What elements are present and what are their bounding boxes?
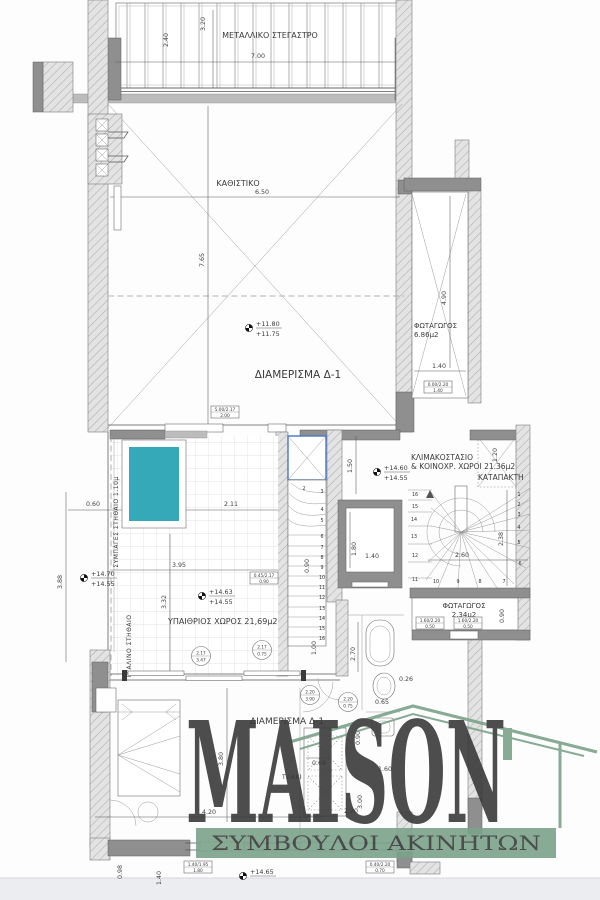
dim-canopy-d2: 3.20: [200, 17, 207, 31]
dim-stair-off: 1.50: [347, 459, 354, 473]
svg-text:9: 9: [320, 565, 323, 571]
svg-text:0.50: 0.50: [463, 624, 473, 630]
dim-shaft-w: 1.40: [365, 553, 379, 560]
level-marker: [239, 872, 246, 879]
well2-label: ΦΩΤΑΓΩΓΟΣ: [442, 602, 485, 610]
dim-side-h: 3.88: [57, 575, 64, 589]
svg-text:2.17: 2.17: [196, 651, 206, 657]
dim-shaft-h: 1.80: [351, 542, 358, 556]
canopy-label: ΜΕΤΑΛΛΙΚΟ ΣΤΕΓΑΣΤΡΟ: [222, 31, 318, 40]
window-tag-4: 1.60/2.20 0.50: [416, 617, 444, 630]
well1-label: ΦΩΤΑΓΩΓΟΣ: [414, 322, 457, 330]
door-tag-1: 2.17 3.47: [192, 647, 211, 666]
dim-canopy-w: 7.00: [251, 53, 265, 60]
apartment-label-red: ΔΙΑΜΕΡΙΣΜΑ Δ-1: [250, 717, 324, 727]
svg-text:12: 12: [412, 553, 418, 559]
level-marker: [373, 468, 380, 475]
svg-text:3.47: 3.47: [196, 658, 206, 664]
svg-text:0.40/2.20: 0.40/2.20: [370, 862, 391, 868]
elev-terr1-a: +14.70: [91, 570, 115, 578]
dim-terr-h: 3.32: [161, 595, 168, 609]
window-tag-5: 1.60/2.20 0.50: [454, 617, 482, 630]
dim-living-h: 7.65: [199, 253, 206, 267]
svg-text:5.00/2.17: 5.00/2.17: [215, 407, 236, 413]
svg-text:2: 2: [302, 486, 305, 492]
stairwell-label-1: ΚΛΙΜΑΚΟΣΤΑΣΙΟ: [411, 453, 473, 462]
svg-text:0.70: 0.70: [375, 868, 385, 874]
apartment-stair: 2 3 4 5 6 7 8 9 10 11 12 13 14 15 16 0.9…: [276, 432, 326, 676]
bed: [118, 700, 180, 796]
dim-low2: 1.40: [156, 871, 163, 885]
dim-terr-w2: 3.95: [172, 562, 186, 569]
elev-living-b: +11.75: [256, 330, 280, 338]
svg-text:1.60/2.20: 1.60/2.20: [458, 618, 479, 624]
dim-terr-w1: 2.11: [224, 501, 238, 508]
svg-text:10: 10: [433, 579, 439, 585]
elev-living-a: +11.80: [256, 320, 280, 328]
dim-lstair-h: 1.00: [311, 641, 318, 655]
level-marker: [198, 592, 205, 599]
svg-text:1.80: 1.80: [193, 868, 203, 874]
svg-text:1: 1: [517, 492, 520, 498]
elev-terr2-a: +14.63: [209, 588, 233, 596]
svg-text:5: 5: [320, 518, 323, 524]
svg-text:0.90: 0.90: [259, 579, 269, 585]
svg-text:4: 4: [517, 525, 520, 531]
svg-text:11: 11: [319, 585, 325, 591]
dim-lstair-w: 0.90: [304, 559, 311, 573]
apartment-label: ΔΙΑΜΕΡΙΣΜΑ Δ-1: [255, 369, 341, 381]
dim-winder-h: 2.38: [498, 532, 505, 546]
svg-text:10: 10: [319, 575, 325, 581]
svg-text:9: 9: [456, 579, 459, 585]
svg-text:8: 8: [320, 555, 323, 561]
dim-low1: 0.98: [117, 865, 124, 879]
floor-plan-page: ΜΕΤΑΛΛΙΚΟ ΣΤΕΓΑΣΤΡΟ 7.00 2.40 3.20 ΚΑΘΙΣ…: [0, 0, 600, 900]
dim-canopy-d1: 2.40: [163, 33, 170, 47]
window-tag-6: 1.40/1.95 1.80: [184, 861, 212, 874]
level-marker: [80, 574, 87, 581]
dim-bath-h: 2.70: [350, 647, 357, 661]
logo-tagline: ΣΥΜΒΟΥΛΟΙ ΑΚΙΝΗΤΩΝ: [211, 831, 541, 855]
level-marker: [245, 324, 252, 331]
page-edge-strip: [0, 878, 600, 900]
stairwell-label-2: & ΚΟΙΝΟΧΡ. ΧΩΡΟΙ 21.36μ2: [411, 462, 515, 471]
dim-hatch-w: 1.20: [492, 448, 499, 462]
svg-text:2: 2: [517, 502, 520, 508]
svg-text:16: 16: [412, 492, 418, 498]
svg-text:12: 12: [319, 595, 325, 601]
dim-winder-w: 2.60: [455, 552, 469, 559]
dim-bath-t: 0.26: [399, 676, 413, 683]
svg-text:2.00: 2.00: [220, 413, 230, 419]
svg-text:13: 13: [319, 606, 325, 612]
svg-text:1.40: 1.40: [433, 388, 443, 394]
elev-stair-a: +14.60: [384, 464, 408, 472]
svg-text:0.50: 0.50: [425, 624, 435, 630]
svg-text:5: 5: [517, 540, 520, 546]
svg-text:0.75: 0.75: [257, 652, 267, 658]
dim-well1-h: 4.90: [441, 291, 448, 305]
elev-stair-b: +14.55: [384, 474, 408, 482]
svg-text:4: 4: [320, 507, 323, 513]
svg-text:6: 6: [320, 534, 323, 540]
svg-text:15: 15: [412, 504, 418, 510]
window-tag-7: 0.40/2.20 0.70: [366, 861, 394, 874]
elev-terr2-b: +14.55: [209, 598, 233, 606]
well1-area: 6.86μ2: [414, 331, 439, 339]
window-tag-3: 0.45/2.17 0.90: [250, 572, 278, 585]
svg-text:1.40/1.95: 1.40/1.95: [188, 862, 209, 868]
door-tag-2: 2.17 0.75: [253, 641, 272, 660]
elev-bottom: +14.65: [250, 868, 274, 876]
svg-text:15: 15: [319, 626, 325, 632]
hatch-door-label: ΚΑΤΑΠΑΚΤΗ: [478, 473, 524, 482]
svg-text:16: 16: [319, 636, 325, 642]
svg-text:8: 8: [478, 579, 481, 585]
svg-text:3: 3: [517, 512, 520, 518]
light-well-2: ΦΩΤΑΓΩΓΟΣ 2.34μ2 1.60/2.20 0.50 1.60/2.2…: [412, 598, 530, 640]
window-tag-2: 0.00/2.20 1.40: [424, 381, 452, 394]
elev-terr1-b: +14.55: [91, 580, 115, 588]
svg-text:13: 13: [411, 534, 417, 540]
svg-text:6: 6: [518, 561, 521, 567]
floor-plan-drawing: ΜΕΤΑΛΛΙΚΟ ΣΤΕΓΑΣΤΡΟ 7.00 2.40 3.20 ΚΑΘΙΣ…: [0, 0, 600, 900]
svg-text:7: 7: [320, 545, 323, 551]
svg-text:0.45/2.17: 0.45/2.17: [254, 573, 275, 579]
svg-text:14: 14: [411, 517, 417, 523]
parapet-solid-label: ΣΥΜΠΑΓΕΣ ΣΤΗΘΑΙΟ 1.10μ: [113, 476, 120, 567]
light-well-1: 4.90 ΦΩΤΑΓΩΓΟΣ 6.86μ2 1.40 0.00/2.20 1.4…: [404, 140, 481, 403]
dim-living-w: 6.50: [255, 189, 269, 196]
dim-well2-h: 0.90: [499, 609, 506, 623]
terrace-label: ΥΠΑΙΘΡΙΟΣ ΧΩΡΟΣ 21,69μ2: [167, 617, 278, 626]
living-label: ΚΑΘΙΣΤΙΚΟ: [216, 179, 259, 188]
parapet-glass-label: ΓΥΑΛΙΝΟ ΣΤΗΘΑΙΟ: [126, 615, 133, 678]
svg-text:0.00/2.20: 0.00/2.20: [428, 382, 449, 388]
svg-text:1.60/2.20: 1.60/2.20: [420, 618, 441, 624]
svg-text:3: 3: [320, 489, 323, 495]
dim-well1-w: 1.40: [432, 363, 446, 370]
svg-text:14: 14: [319, 616, 325, 622]
svg-text:7: 7: [502, 579, 505, 585]
window-tag-1: 5.00/2.17 2.00: [211, 406, 239, 419]
pool: [128, 446, 180, 522]
dim-pool-off: 0.60: [86, 501, 100, 508]
svg-text:2.17: 2.17: [257, 645, 267, 651]
